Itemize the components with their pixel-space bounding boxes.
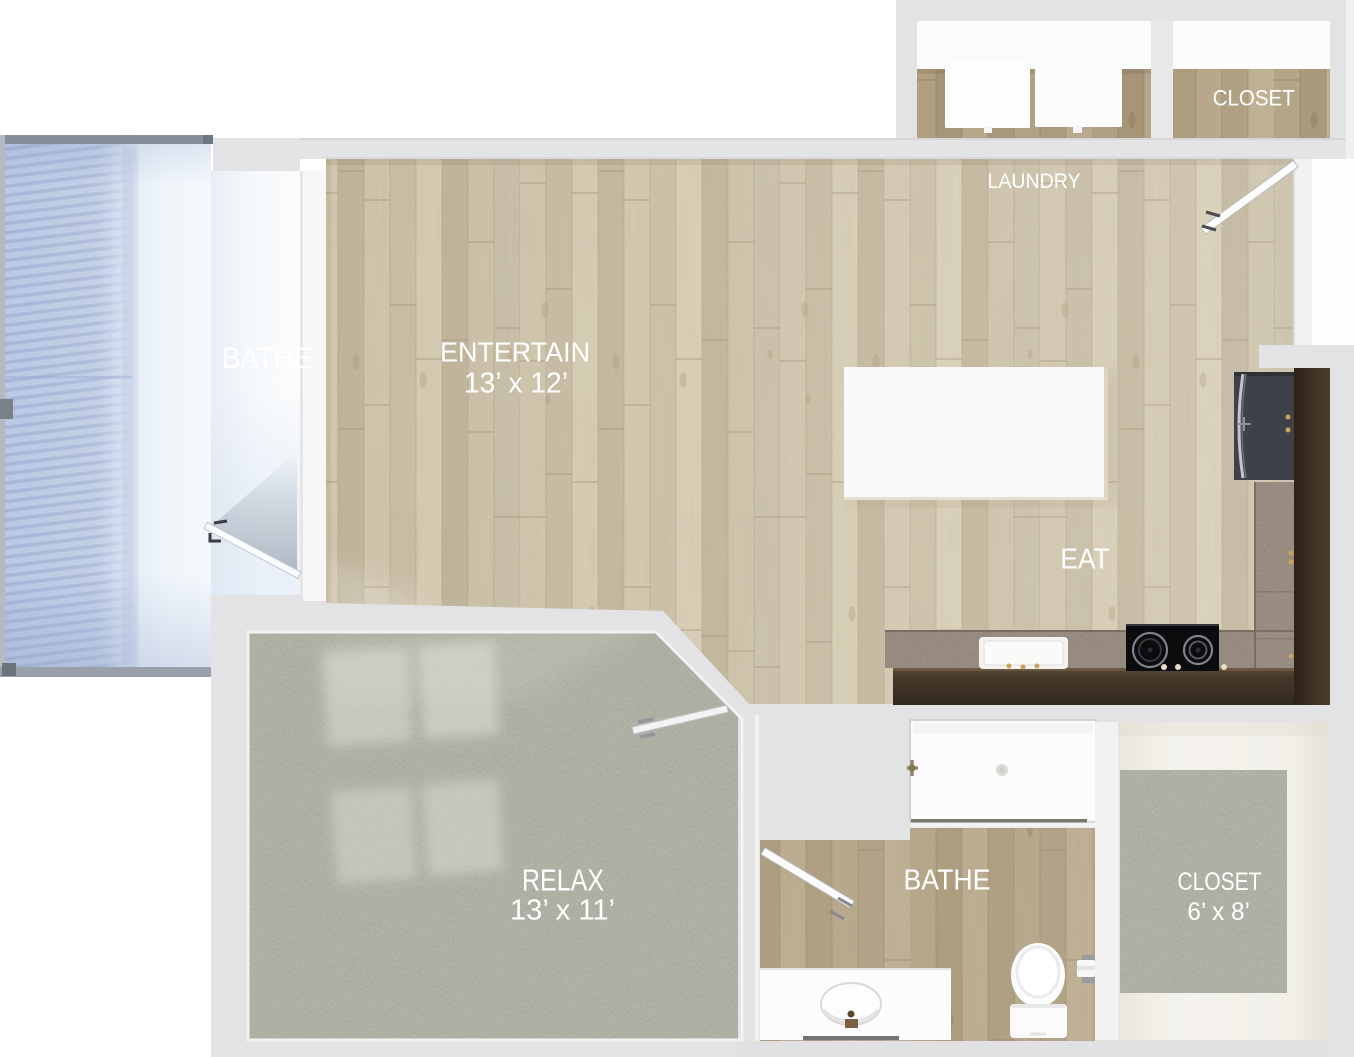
svg-text:RELAX: RELAX <box>522 863 604 898</box>
svg-text:ENTERTAIN: ENTERTAIN <box>440 337 590 368</box>
svg-text:BATHE: BATHE <box>904 865 991 897</box>
svg-text:13’ x 11’: 13’ x 11’ <box>510 895 615 927</box>
svg-text:13’ x 12’: 13’ x 12’ <box>464 368 568 400</box>
svg-text:CLOSET: CLOSET <box>1213 86 1295 111</box>
svg-text:CLOSET: CLOSET <box>1178 868 1262 896</box>
svg-text:LAUNDRY: LAUNDRY <box>988 170 1081 193</box>
svg-text:6’ x 8’: 6’ x 8’ <box>1187 898 1250 926</box>
svg-text:EAT: EAT <box>1061 544 1110 576</box>
svg-text:BATHE: BATHE <box>222 342 312 375</box>
